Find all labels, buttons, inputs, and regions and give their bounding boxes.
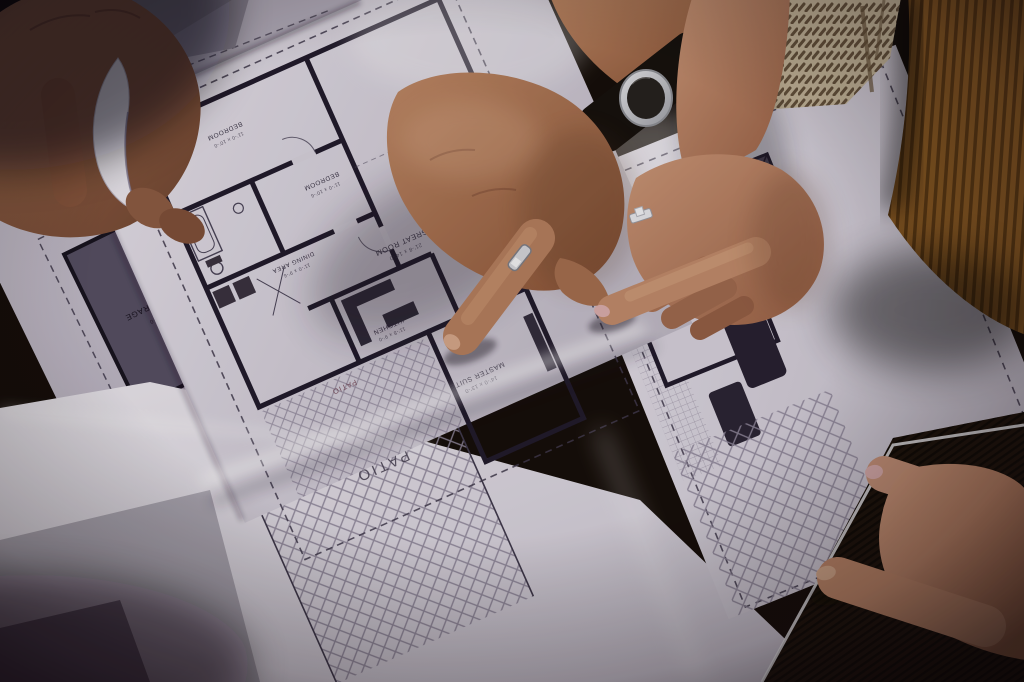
photo-canvas: DOUBLE GARAGE 19'-4 x 19'-0 PATIO 47'-6"… [0,0,1024,682]
photo-couple-reviewing-floorplans: DOUBLE GARAGE 19'-4 x 19'-0 PATIO 47'-6"… [0,0,1024,682]
vignette [0,0,1024,682]
